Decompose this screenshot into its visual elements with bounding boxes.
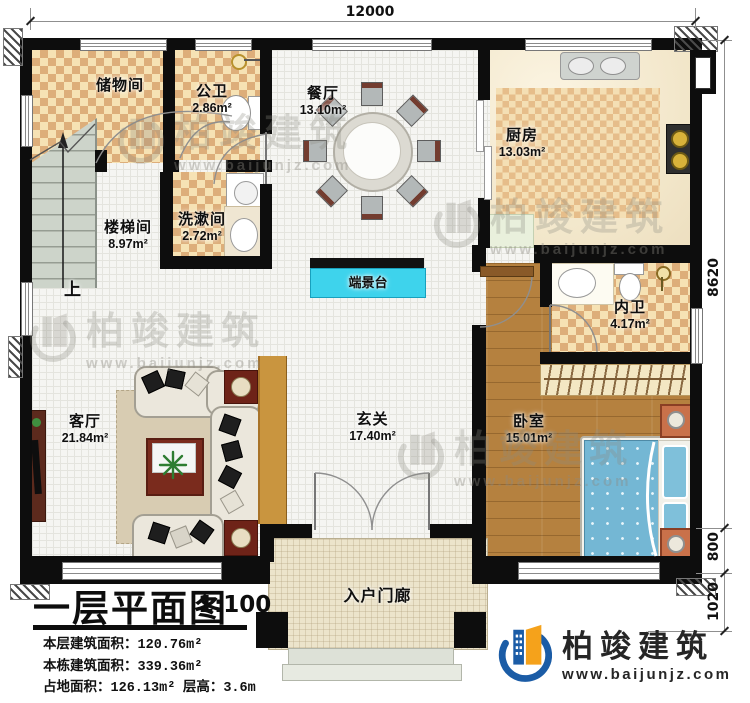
- sofa-pillow: [164, 368, 185, 389]
- room-label-living: 客厅 21.84m²: [40, 414, 130, 445]
- room-label-porch: 入户门廊: [330, 588, 425, 606]
- wardrobe-rod: [544, 378, 686, 380]
- flue-opening: [695, 57, 711, 89]
- nightstand-lamp: [667, 411, 685, 429]
- porch-column: [454, 612, 486, 648]
- brand-logo-icon: [492, 620, 552, 684]
- wall: [260, 50, 272, 134]
- vanity-sink: [558, 268, 596, 298]
- room-label-inner-bath: 内卫 4.17m²: [598, 300, 662, 331]
- dim-right-bottom: 1020: [706, 582, 722, 621]
- area-stats: 本层建筑面积：120.76m² 本栋建筑面积：339.36m² 占地面积：126…: [43, 634, 256, 699]
- witness-line: [696, 528, 732, 529]
- witness-line: [696, 573, 732, 574]
- wall: [163, 160, 179, 172]
- bed-pillow: [662, 445, 688, 499]
- shower-stem: [661, 277, 663, 291]
- dimension-line-right: [724, 40, 725, 631]
- room-label-storage: 储物间: [80, 78, 160, 95]
- window: [195, 39, 252, 51]
- floor-plan-canvas: 端景台: [0, 0, 750, 703]
- dining-chair: [361, 82, 383, 106]
- dim-top-width: 12000: [330, 4, 410, 20]
- title-underline: [33, 625, 247, 630]
- brand-name: 柏竣建筑: [562, 621, 731, 666]
- dining-table-top: [343, 122, 401, 180]
- washing-machine-drum: [234, 181, 258, 205]
- kitchen-sink-basin: [600, 57, 626, 75]
- console-label: 端景台: [348, 276, 387, 291]
- dimension-line-top: [30, 21, 696, 22]
- side-table-decor: [231, 377, 251, 397]
- kitchen-counter: [486, 214, 534, 248]
- nightstand-lamp: [667, 535, 685, 553]
- witness-line: [702, 40, 732, 41]
- dining-chair: [417, 140, 441, 162]
- wall: [226, 160, 272, 172]
- bed-mattress: [584, 440, 660, 558]
- stove-burner: [671, 152, 689, 170]
- shower-head: [656, 266, 671, 281]
- porch-step: [282, 664, 462, 681]
- drain-line: [244, 59, 260, 61]
- window: [312, 39, 432, 51]
- toilet-bowl: [619, 273, 641, 301]
- wall: [260, 524, 274, 562]
- stove-burner: [671, 130, 689, 148]
- chimney-hatch: [674, 26, 718, 52]
- window: [518, 562, 660, 580]
- exterior-hatch: [8, 336, 23, 378]
- wall: [274, 524, 312, 538]
- stairs-up-label: 上: [60, 280, 86, 299]
- window: [21, 282, 33, 336]
- wall: [95, 150, 107, 172]
- room-label-dining: 餐厅 13.10m²: [285, 86, 361, 117]
- room-label-kitchen: 厨房 13.03m²: [482, 128, 562, 159]
- window: [525, 39, 652, 51]
- stat-building-area: 本栋建筑面积：339.36m²: [43, 656, 256, 678]
- door-leaf: [480, 266, 534, 277]
- dim-right-height: 8620: [706, 258, 722, 297]
- wall: [478, 198, 490, 248]
- floor-drain: [231, 54, 247, 70]
- window: [21, 95, 33, 147]
- room-label-bedroom: 卧室 15.01m²: [493, 414, 565, 445]
- wall: [540, 352, 702, 364]
- dim-right-lower: 800: [706, 532, 722, 561]
- wall: [163, 50, 175, 162]
- kitchen-sink-basin: [568, 57, 594, 75]
- wardrobe: [540, 364, 692, 396]
- wall: [160, 256, 272, 269]
- room-label-foyer: 玄关 17.40m²: [330, 412, 415, 443]
- window: [80, 39, 167, 51]
- wall: [534, 245, 702, 263]
- stat-floor-area: 本层建筑面积：120.76m²: [43, 634, 256, 656]
- side-table-decor: [231, 528, 251, 548]
- plan-scale: 1:100: [198, 592, 271, 618]
- brand-logo: 柏竣建筑 www.baijunjz.com: [492, 620, 731, 684]
- console-table-body: 端景台: [310, 268, 426, 298]
- console-table: [310, 258, 424, 268]
- wall: [540, 263, 552, 307]
- brand-url: www.baijunjz.com: [562, 666, 731, 683]
- wall: [478, 50, 490, 100]
- partition-screen: [258, 356, 287, 524]
- dining-chair: [361, 196, 383, 220]
- storage-floor: [32, 50, 163, 163]
- wall: [472, 325, 486, 556]
- plant-icon: [156, 448, 190, 482]
- stat-footprint-and-height: 占地面积：126.13m² 层高：3.6m: [43, 677, 256, 699]
- exterior-hatch: [3, 28, 23, 66]
- room-label-washroom: 洗漱间 2.72m²: [162, 212, 242, 243]
- room-label-public-bath: 公卫 2.86m²: [182, 84, 242, 115]
- room-label-stairwell: 楼梯间 8.97m²: [88, 220, 168, 251]
- window: [691, 308, 703, 364]
- dining-chair: [303, 140, 327, 162]
